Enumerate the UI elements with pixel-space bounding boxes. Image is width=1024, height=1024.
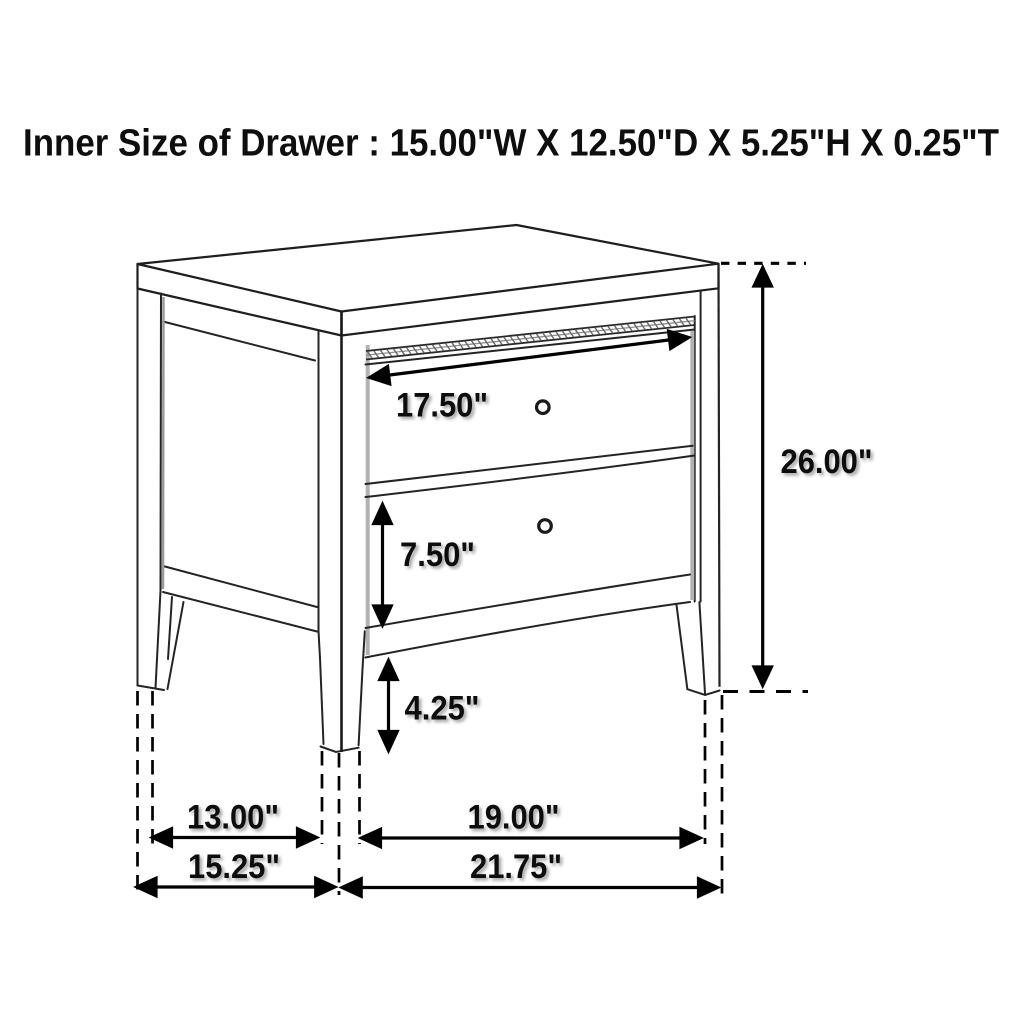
- svg-text:13.00": 13.00": [187, 799, 279, 837]
- svg-text:26.00": 26.00": [781, 443, 873, 481]
- svg-text:15.25": 15.25": [188, 848, 280, 886]
- svg-text:4.25": 4.25": [405, 690, 480, 728]
- svg-text:19.00": 19.00": [468, 799, 560, 837]
- svg-text:21.75": 21.75": [470, 848, 562, 886]
- svg-text:17.50": 17.50": [396, 387, 488, 425]
- svg-text:7.50": 7.50": [400, 536, 475, 574]
- svg-text:Inner Size of Drawer : 15.00"W: Inner Size of Drawer : 15.00"W X 12.50"D…: [23, 123, 999, 165]
